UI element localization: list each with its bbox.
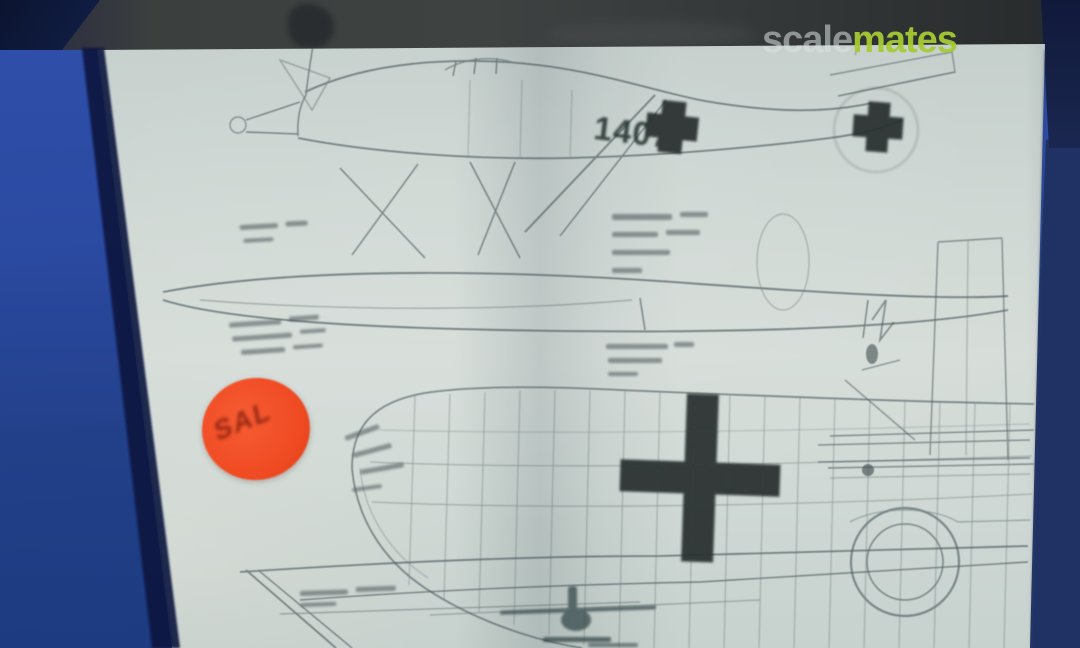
shadow-blob — [288, 4, 334, 48]
watermark-mates-text: mates — [852, 19, 957, 61]
watermark-scale-text: scale — [762, 19, 852, 61]
watermark: scalemates — [762, 20, 957, 64]
photo-of-model-plan-sheet: 1407 SAL scalemates — [0, 0, 1080, 648]
plan-sheet-paper — [0, 0, 1080, 648]
sticker-label: SAL — [212, 395, 274, 448]
shadow-blob — [545, 22, 755, 48]
